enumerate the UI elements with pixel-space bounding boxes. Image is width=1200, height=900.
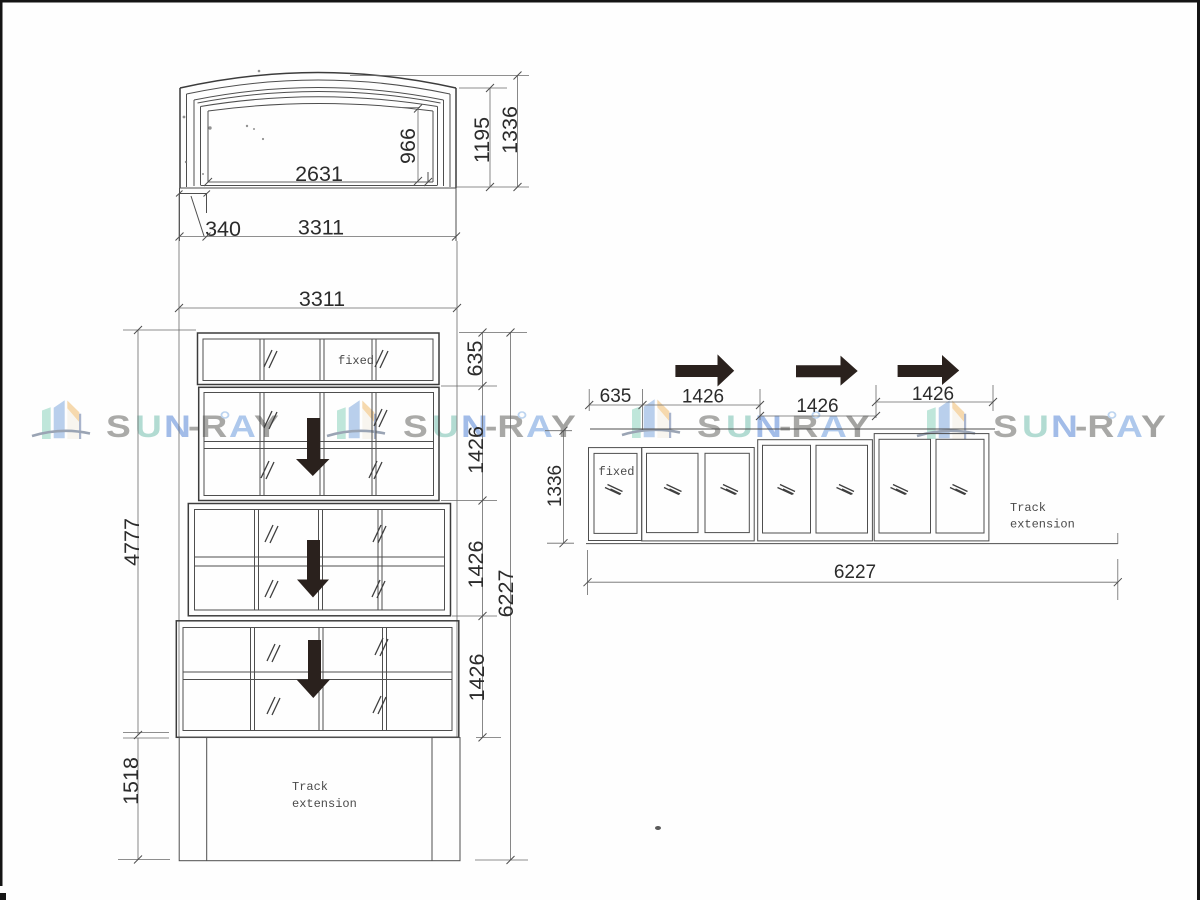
svg-text:3311: 3311 — [298, 216, 344, 240]
svg-text:1336: 1336 — [498, 106, 522, 154]
svg-text:1336: 1336 — [545, 465, 566, 507]
svg-text:6227: 6227 — [494, 570, 518, 618]
svg-text:6227: 6227 — [834, 562, 876, 583]
svg-text:4777: 4777 — [120, 518, 144, 566]
svg-text:Track: Track — [292, 780, 328, 794]
svg-text:fixed: fixed — [599, 465, 635, 479]
svg-text:1195: 1195 — [470, 117, 494, 163]
svg-text:extension: extension — [292, 797, 357, 811]
svg-text:635: 635 — [600, 386, 632, 407]
svg-text:1426: 1426 — [464, 541, 488, 589]
svg-text:635: 635 — [463, 341, 487, 377]
svg-text:1426: 1426 — [682, 387, 724, 408]
svg-text:Track: Track — [1010, 501, 1046, 515]
svg-text:3311: 3311 — [299, 287, 345, 311]
svg-text:1426: 1426 — [465, 654, 489, 702]
svg-text:fixed: fixed — [338, 354, 374, 368]
svg-text:extension: extension — [1010, 518, 1075, 532]
svg-text:340: 340 — [205, 217, 241, 241]
svg-text:966: 966 — [396, 128, 420, 164]
svg-text:1426: 1426 — [464, 426, 488, 474]
svg-text:1426: 1426 — [796, 396, 838, 417]
svg-text:1518: 1518 — [119, 757, 143, 805]
